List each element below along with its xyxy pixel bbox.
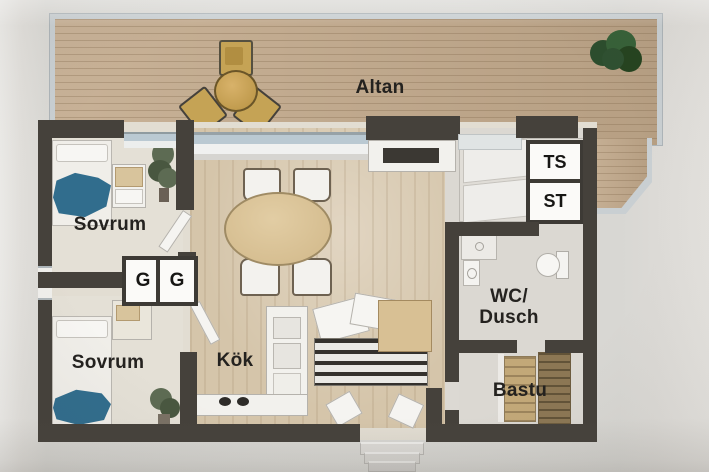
shower-drain bbox=[475, 242, 484, 251]
patio-chair-back-seat bbox=[225, 47, 243, 65]
wall-wc-bastu-right bbox=[545, 340, 583, 353]
st-closet-box: ST bbox=[526, 179, 584, 224]
sovrum-bottom-label-text: Sovrum bbox=[72, 353, 145, 374]
shower bbox=[461, 232, 497, 260]
dresser bbox=[112, 300, 152, 340]
wall-top-entry bbox=[516, 116, 578, 138]
altan-label: Altan bbox=[340, 76, 420, 100]
altan-label-text: Altan bbox=[356, 78, 405, 99]
sovrum-top-label: Sovrum bbox=[60, 214, 160, 236]
kitchen-counter-shelf bbox=[273, 343, 301, 369]
wardrobe-g-label: G bbox=[170, 270, 185, 292]
wardrobe-g-label: G bbox=[136, 270, 151, 292]
closet-shelf bbox=[463, 179, 527, 224]
bastu-label-text: Bastu bbox=[493, 381, 547, 402]
wardrobe-box: G bbox=[156, 256, 198, 306]
wall-top-spine-pillar bbox=[176, 120, 194, 154]
plant-pot bbox=[159, 188, 169, 202]
stove-knob bbox=[237, 397, 249, 406]
stove-knob bbox=[219, 397, 231, 406]
spine-wall-upper bbox=[176, 150, 194, 210]
sink-basin bbox=[467, 268, 477, 279]
entry-threshold bbox=[458, 134, 522, 150]
kitchen-bottom-counter bbox=[196, 394, 308, 416]
toilet-bowl bbox=[536, 253, 560, 277]
kok-label-text: Kök bbox=[217, 351, 254, 372]
bastu-door-gap bbox=[445, 382, 459, 410]
kitchen-cabinet bbox=[378, 300, 432, 352]
step bbox=[368, 461, 416, 472]
spine-wall-lower bbox=[180, 352, 197, 425]
bed-blanket bbox=[53, 389, 111, 425]
entrance-steps bbox=[358, 442, 424, 472]
kitchen-counter-shelf bbox=[273, 317, 301, 339]
sliding-glass-door bbox=[194, 132, 368, 160]
hall-plant-icon bbox=[146, 388, 182, 428]
wall-bottom-left bbox=[38, 424, 360, 442]
plant-leaf bbox=[602, 48, 624, 70]
patio-table bbox=[214, 70, 258, 112]
bed-blanket bbox=[53, 171, 111, 219]
kok-label: Kök bbox=[204, 350, 266, 372]
dining-table bbox=[224, 192, 332, 266]
wc-dusch-label: WC/ Dusch bbox=[462, 280, 556, 336]
deck-plant-icon bbox=[590, 30, 644, 80]
wall-right bbox=[583, 128, 597, 442]
st-label: ST bbox=[543, 191, 566, 212]
bedroom-window bbox=[124, 132, 178, 148]
bed-pillow bbox=[56, 144, 108, 162]
sideboard-inset bbox=[383, 148, 439, 163]
floor-plan-photo: TS ST G G bbox=[0, 0, 709, 472]
wall-between-bedrooms bbox=[38, 272, 122, 288]
wall-top-living bbox=[366, 116, 460, 140]
nightstand-top bbox=[115, 167, 143, 187]
floor-plan: TS ST G G bbox=[0, 0, 709, 472]
ts-label: TS bbox=[543, 152, 566, 173]
wc-label-line1: WC/ bbox=[490, 287, 528, 308]
dresser-top bbox=[116, 305, 140, 321]
wall-wc-top bbox=[459, 222, 539, 236]
wall-entry-pillar bbox=[426, 388, 442, 426]
sideboard bbox=[368, 140, 456, 172]
bastu-label: Bastu bbox=[480, 380, 560, 402]
bed-pillow bbox=[56, 320, 108, 338]
sovrum-top-label-text: Sovrum bbox=[74, 215, 147, 236]
toilet bbox=[536, 250, 568, 278]
kitchen-counter bbox=[266, 306, 308, 406]
dining-chair bbox=[292, 258, 332, 296]
wall-top-bedroom bbox=[38, 120, 124, 138]
wall-wc-bastu-left bbox=[459, 340, 517, 353]
plant-leaf bbox=[158, 168, 178, 188]
nightstand-drawer bbox=[115, 189, 143, 204]
sovrum-bottom-label: Sovrum bbox=[58, 352, 158, 374]
nightstand bbox=[112, 164, 146, 208]
wc-label-line2: Dusch bbox=[479, 308, 539, 329]
